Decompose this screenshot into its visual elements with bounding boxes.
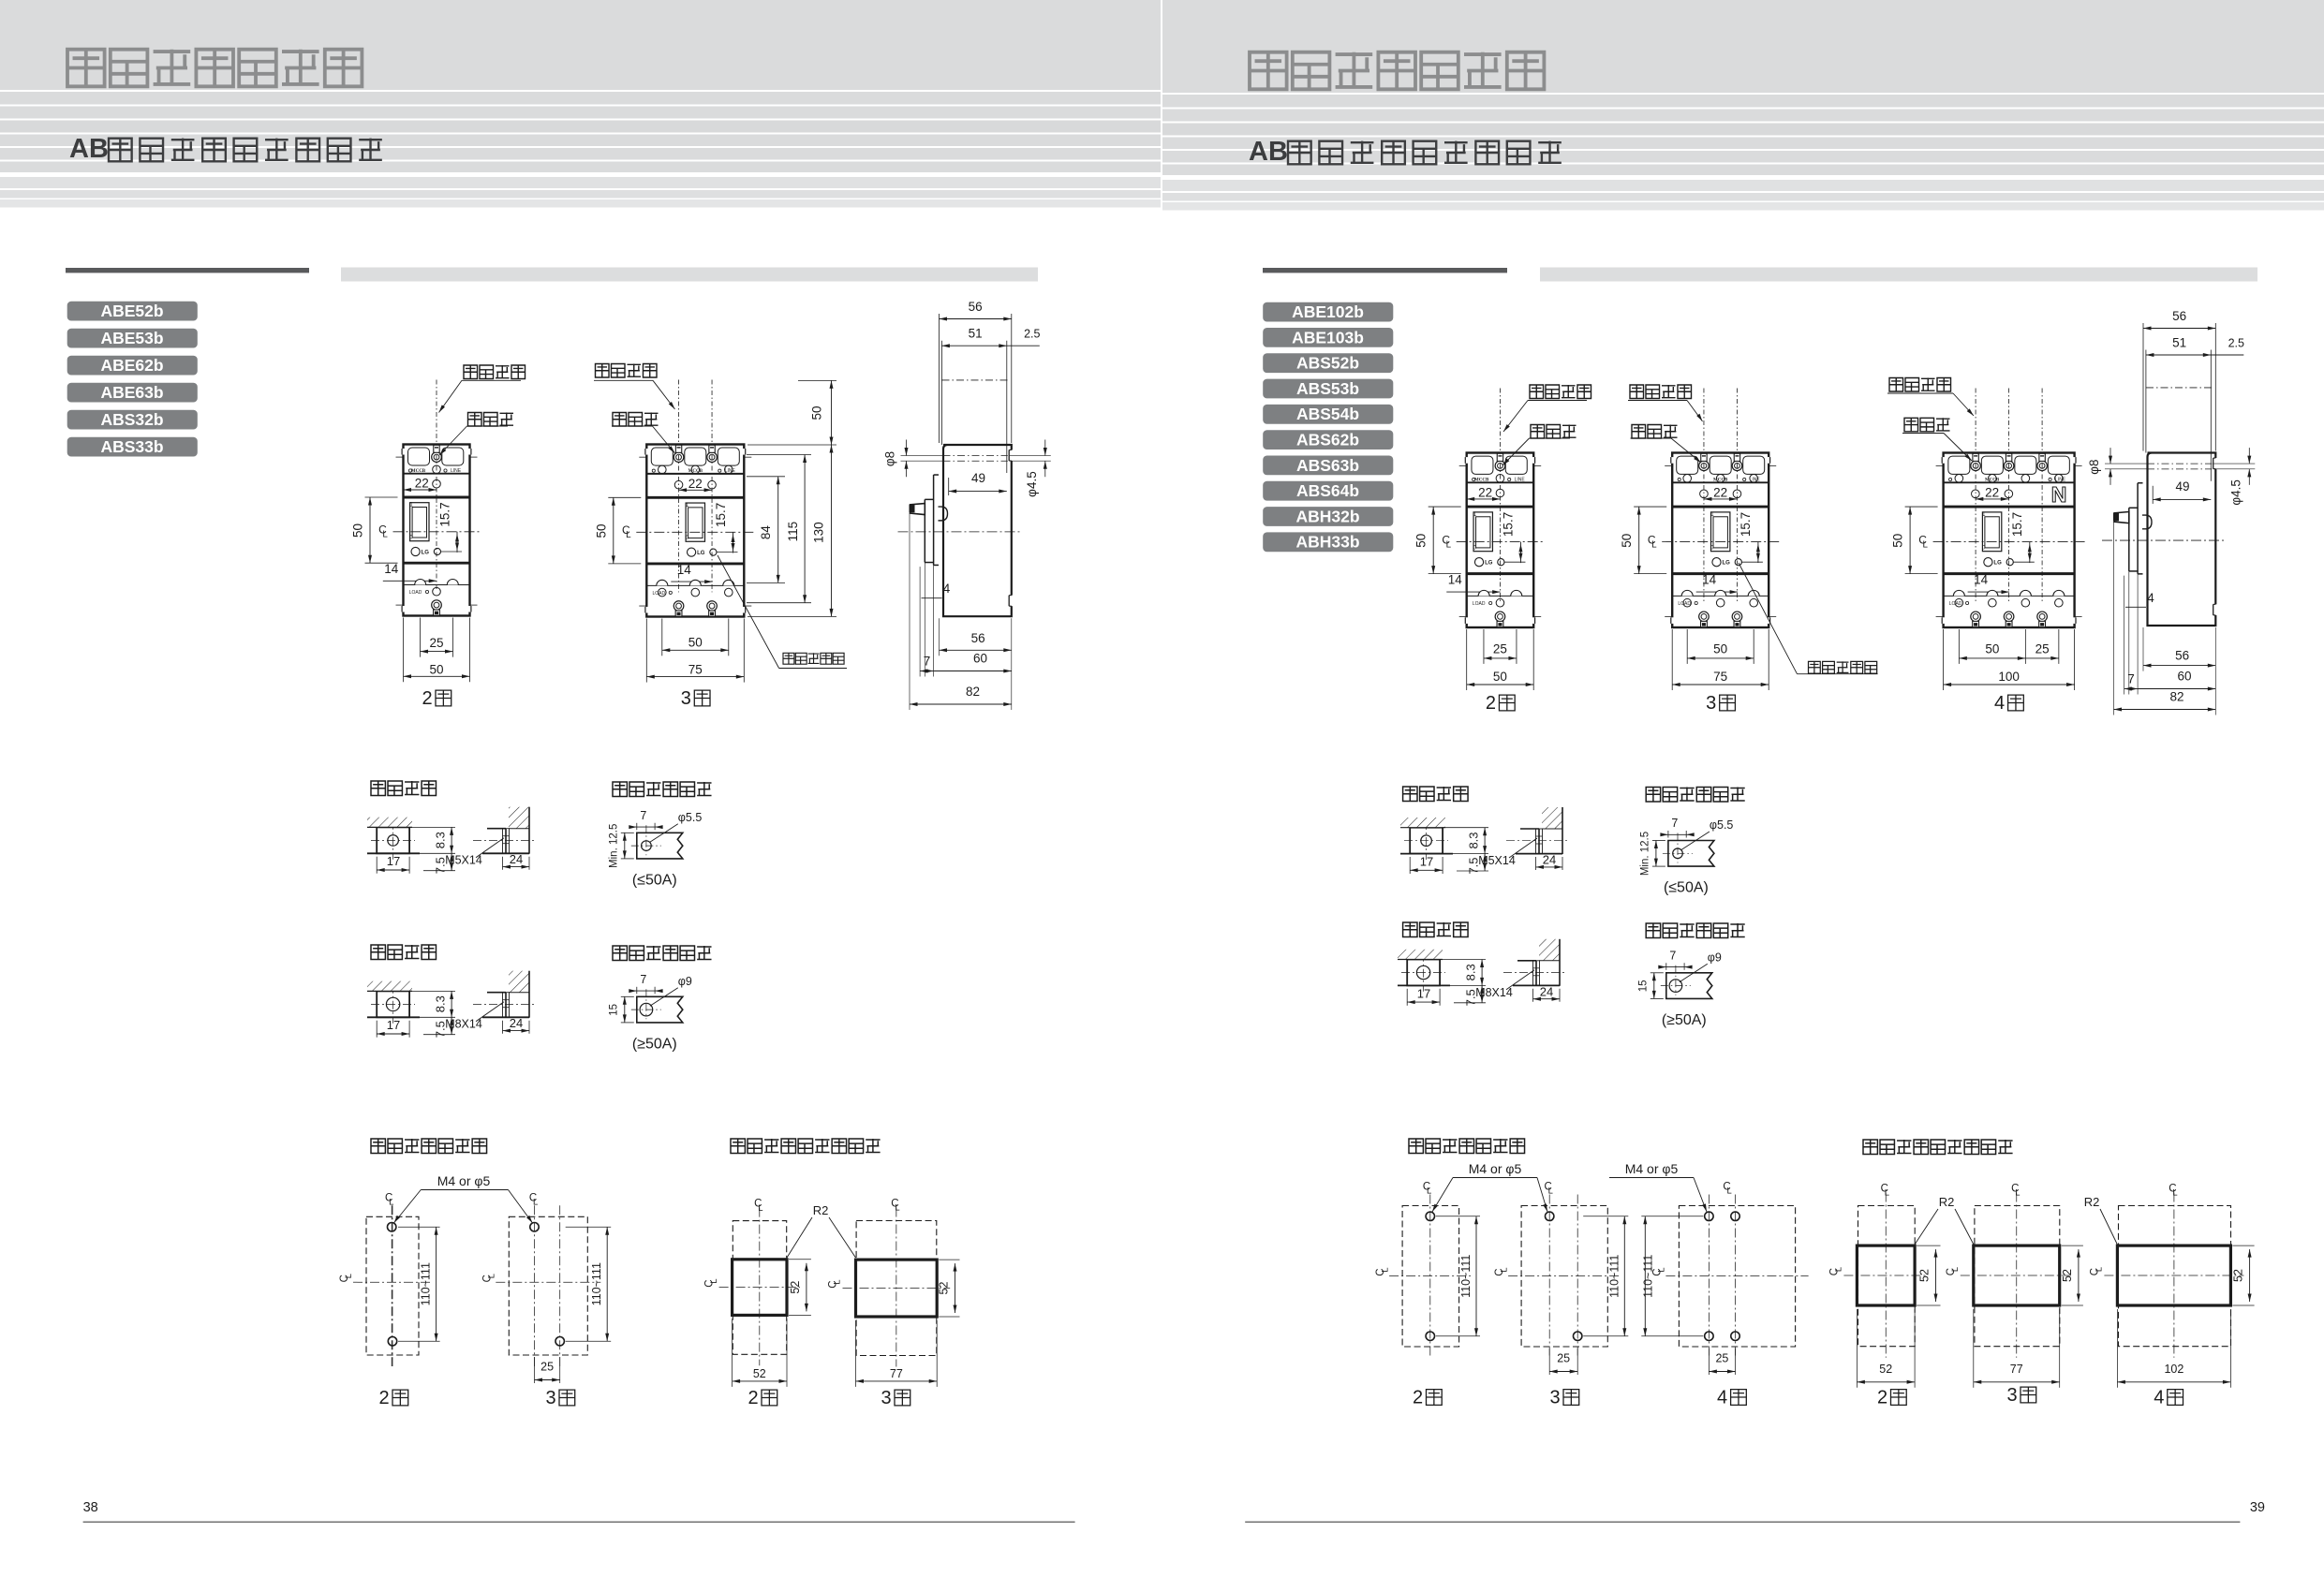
svg-text:8.3: 8.3 [1464, 964, 1478, 980]
svg-text:77: 77 [2010, 1363, 2023, 1376]
svg-text:3: 3 [2006, 1385, 2017, 1406]
svg-text:2.5: 2.5 [2228, 337, 2244, 350]
svg-text:MCCB: MCCB [1713, 478, 1728, 482]
svg-text:3: 3 [1706, 693, 1716, 714]
svg-text:3: 3 [681, 688, 691, 709]
svg-text:(≥50A): (≥50A) [1662, 1012, 1707, 1028]
svg-text:ABS63b: ABS63b [1296, 456, 1359, 475]
svg-text:50: 50 [594, 523, 608, 538]
svg-text:50: 50 [1620, 534, 1634, 548]
svg-text:15: 15 [1637, 980, 1649, 992]
svg-text:50: 50 [1414, 534, 1428, 548]
svg-text:L: L [1427, 1186, 1431, 1196]
svg-text:52: 52 [753, 1367, 766, 1380]
svg-text:4: 4 [943, 582, 951, 596]
svg-text:φ8: φ8 [2087, 459, 2101, 474]
svg-text:110~111: 110~111 [1641, 1255, 1654, 1298]
svg-text:24: 24 [1540, 984, 1553, 998]
svg-text:49: 49 [971, 471, 985, 485]
svg-text:60: 60 [2177, 670, 2191, 684]
svg-text:φ5.5: φ5.5 [1710, 818, 1734, 832]
svg-text:ABS32b: ABS32b [100, 410, 163, 429]
svg-text:50: 50 [688, 636, 703, 650]
svg-text:24: 24 [1543, 853, 1556, 867]
svg-text:ABE63b: ABE63b [100, 383, 163, 402]
svg-text:L: L [832, 1279, 842, 1284]
svg-text:LINE: LINE [1515, 477, 1526, 482]
svg-text:50: 50 [1891, 534, 1905, 548]
svg-text:MCCB: MCCB [1985, 478, 2000, 482]
svg-text:52: 52 [2232, 1269, 2245, 1282]
svg-text:ABS62b: ABS62b [1296, 431, 1359, 450]
svg-text:15.7: 15.7 [1739, 512, 1753, 537]
svg-text:ABH33b: ABH33b [1295, 533, 1359, 552]
svg-text:22: 22 [1478, 485, 1492, 499]
svg-text:8.3: 8.3 [434, 995, 448, 1012]
svg-text:AB: AB [69, 134, 109, 164]
svg-text:52: 52 [2061, 1269, 2074, 1282]
svg-text:L: L [2172, 1187, 2177, 1198]
svg-text:8.3: 8.3 [434, 832, 448, 848]
svg-text:14: 14 [1702, 573, 1717, 587]
svg-text:φ9: φ9 [1708, 951, 1722, 964]
svg-text:38: 38 [83, 1500, 98, 1515]
svg-text:Min. 12.5: Min. 12.5 [1639, 832, 1650, 876]
svg-text:4: 4 [2147, 591, 2154, 605]
svg-text:LOAD: LOAD [409, 590, 422, 596]
svg-text:L: L [1498, 1267, 1508, 1272]
svg-text:25: 25 [1557, 1352, 1570, 1365]
svg-text:L: L [1726, 1186, 1731, 1196]
svg-text:φ8: φ8 [883, 451, 897, 466]
svg-text:M4 or φ5: M4 or φ5 [1625, 1161, 1679, 1176]
svg-text:14: 14 [384, 562, 399, 576]
svg-text:14: 14 [677, 563, 692, 577]
svg-text:49: 49 [2175, 479, 2189, 494]
svg-text:25: 25 [2035, 642, 2050, 656]
svg-text:50: 50 [1985, 642, 1999, 656]
svg-text:52: 52 [1918, 1269, 1932, 1282]
svg-text:ABE103b: ABE103b [1292, 328, 1364, 346]
svg-text:82: 82 [2169, 690, 2183, 704]
svg-text:51: 51 [2172, 336, 2186, 350]
svg-text:LG: LG [422, 551, 430, 556]
svg-text:50: 50 [351, 523, 365, 538]
svg-text:75: 75 [688, 663, 703, 677]
svg-text:15.7: 15.7 [437, 502, 451, 526]
svg-text:14: 14 [1974, 573, 1989, 587]
svg-text:L: L [626, 530, 631, 540]
svg-text:2: 2 [422, 688, 432, 709]
svg-text:84: 84 [759, 525, 773, 540]
svg-text:ABS52b: ABS52b [1296, 354, 1359, 373]
svg-text:LG: LG [697, 551, 705, 556]
svg-text:ABE53b: ABE53b [100, 329, 163, 347]
svg-text:22: 22 [1985, 485, 1999, 499]
svg-text:φ4.5: φ4.5 [2228, 479, 2243, 506]
svg-text:ABH32b: ABH32b [1295, 507, 1359, 525]
svg-text:7: 7 [924, 655, 931, 669]
svg-text:2.5: 2.5 [1024, 328, 1040, 341]
svg-text:M5X14: M5X14 [445, 854, 482, 867]
svg-text:AB: AB [1249, 137, 1288, 167]
svg-text:4: 4 [1994, 693, 2005, 714]
svg-text:52: 52 [1879, 1363, 1892, 1376]
svg-text:110~111: 110~111 [1459, 1255, 1473, 1298]
svg-text:60: 60 [973, 652, 987, 666]
svg-text:(≥50A): (≥50A) [632, 1036, 677, 1052]
svg-text:ABS33b: ABS33b [100, 437, 163, 456]
svg-text:17: 17 [1417, 986, 1430, 1000]
svg-text:50: 50 [429, 663, 443, 677]
svg-text:102: 102 [2164, 1363, 2183, 1376]
svg-text:17: 17 [387, 854, 400, 868]
svg-text:LOAD: LOAD [1473, 601, 1486, 607]
svg-text:110~111: 110~111 [420, 1262, 433, 1305]
svg-text:56: 56 [971, 631, 985, 645]
svg-text:ABE62b: ABE62b [100, 356, 163, 375]
svg-text:LG: LG [1993, 561, 2002, 567]
svg-text:L: L [533, 1197, 538, 1207]
svg-text:L: L [895, 1202, 899, 1213]
svg-text:ABS53b: ABS53b [1296, 379, 1359, 398]
svg-text:82: 82 [966, 685, 980, 699]
svg-text:L: L [1379, 1267, 1389, 1272]
svg-text:(≤50A): (≤50A) [1664, 880, 1709, 896]
svg-text:LINE: LINE [725, 468, 736, 474]
svg-text:130: 130 [812, 522, 826, 543]
svg-text:L: L [1922, 540, 1928, 551]
svg-text:MCCB: MCCB [1474, 478, 1489, 482]
svg-text:22: 22 [415, 477, 429, 491]
svg-text:φ5.5: φ5.5 [678, 811, 703, 824]
svg-text:L: L [2094, 1267, 2104, 1272]
svg-text:110~111: 110~111 [1607, 1255, 1621, 1298]
svg-text:ABS54b: ABS54b [1296, 405, 1359, 423]
svg-text:MCCB: MCCB [411, 469, 426, 474]
svg-text:22: 22 [1713, 485, 1727, 499]
svg-text:4: 4 [2154, 1388, 2164, 1408]
svg-text:24: 24 [510, 1016, 523, 1030]
svg-text:L: L [1651, 540, 1657, 551]
svg-text:L: L [343, 1274, 353, 1278]
svg-text:L: L [486, 1274, 496, 1278]
svg-text:56: 56 [969, 300, 983, 314]
svg-text:M8X14: M8X14 [1475, 986, 1513, 999]
svg-text:L: L [2015, 1187, 2020, 1198]
svg-text:52: 52 [938, 1282, 951, 1295]
svg-text:R2: R2 [1939, 1195, 1955, 1209]
svg-text:2: 2 [1877, 1388, 1887, 1408]
svg-text:14: 14 [1448, 573, 1463, 587]
svg-text:L: L [708, 1278, 718, 1283]
svg-text:L: L [1885, 1187, 1889, 1198]
svg-text:50: 50 [809, 405, 823, 420]
svg-text:25: 25 [1715, 1352, 1728, 1365]
svg-text:110~111: 110~111 [590, 1262, 603, 1305]
svg-text:15: 15 [608, 1004, 619, 1016]
svg-text:L: L [758, 1202, 762, 1213]
svg-text:LINE: LINE [451, 468, 462, 474]
svg-text:24: 24 [510, 852, 523, 866]
svg-text:Min. 12.5: Min. 12.5 [608, 824, 619, 868]
svg-text:LINE: LINE [1750, 477, 1761, 482]
svg-text:N: N [2051, 482, 2067, 507]
svg-text:R2: R2 [813, 1203, 829, 1217]
svg-text:56: 56 [2172, 309, 2186, 323]
svg-text:3: 3 [545, 1388, 555, 1408]
svg-text:3: 3 [881, 1388, 891, 1408]
svg-text:17: 17 [387, 1018, 400, 1032]
svg-text:8.3: 8.3 [1467, 832, 1481, 848]
svg-text:75: 75 [1713, 670, 1727, 684]
svg-text:(≤50A): (≤50A) [632, 872, 677, 888]
svg-text:7: 7 [640, 973, 646, 986]
svg-text:7: 7 [1671, 817, 1678, 830]
svg-text:15.7: 15.7 [1502, 512, 1516, 537]
svg-text:L: L [1446, 540, 1452, 551]
svg-text:25: 25 [1493, 642, 1507, 656]
svg-text:7: 7 [640, 809, 646, 822]
svg-text:56: 56 [2175, 649, 2189, 663]
svg-text:17: 17 [1420, 855, 1433, 869]
svg-text:22: 22 [688, 477, 703, 491]
svg-text:φ4.5: φ4.5 [1025, 471, 1039, 497]
svg-text:2: 2 [748, 1388, 758, 1408]
svg-text:L: L [1949, 1267, 1960, 1272]
svg-text:2: 2 [1486, 693, 1496, 714]
svg-text:15.7: 15.7 [2010, 512, 2024, 537]
svg-text:4: 4 [1717, 1388, 1727, 1408]
svg-text:L: L [389, 1197, 393, 1207]
svg-text:3: 3 [1549, 1388, 1560, 1408]
svg-text:7: 7 [1669, 949, 1676, 962]
svg-text:ABE52b: ABE52b [100, 302, 163, 320]
svg-text:2: 2 [378, 1388, 389, 1408]
svg-text:M4 or φ5: M4 or φ5 [1469, 1161, 1522, 1176]
svg-text:100: 100 [1998, 670, 2020, 684]
svg-text:M5X14: M5X14 [1478, 854, 1516, 867]
svg-text:M8X14: M8X14 [445, 1018, 482, 1031]
svg-text:15.7: 15.7 [714, 503, 728, 527]
svg-text:25: 25 [540, 1361, 554, 1374]
svg-text:φ9: φ9 [678, 975, 692, 988]
svg-text:LG: LG [1485, 561, 1493, 567]
svg-text:50: 50 [1713, 642, 1727, 656]
svg-text:L: L [382, 530, 388, 540]
svg-text:L: L [1548, 1186, 1553, 1196]
svg-text:2: 2 [1413, 1388, 1423, 1408]
svg-text:L: L [1833, 1267, 1843, 1272]
svg-text:7: 7 [2127, 672, 2135, 686]
svg-text:25: 25 [429, 636, 443, 650]
svg-text:MCCB: MCCB [688, 469, 703, 474]
svg-text:LG: LG [1723, 561, 1731, 567]
svg-text:39: 39 [2250, 1500, 2265, 1515]
svg-text:ABS64b: ABS64b [1296, 481, 1359, 500]
svg-text:ABE102b: ABE102b [1292, 302, 1364, 321]
svg-text:115: 115 [786, 522, 800, 542]
svg-text:L: L [1656, 1267, 1666, 1272]
svg-text:77: 77 [890, 1367, 903, 1380]
svg-text:52: 52 [789, 1281, 802, 1294]
svg-text:R2: R2 [2084, 1195, 2100, 1209]
svg-text:M4 or φ5: M4 or φ5 [437, 1173, 491, 1188]
svg-text:50: 50 [1493, 670, 1507, 684]
svg-text:51: 51 [969, 327, 983, 341]
